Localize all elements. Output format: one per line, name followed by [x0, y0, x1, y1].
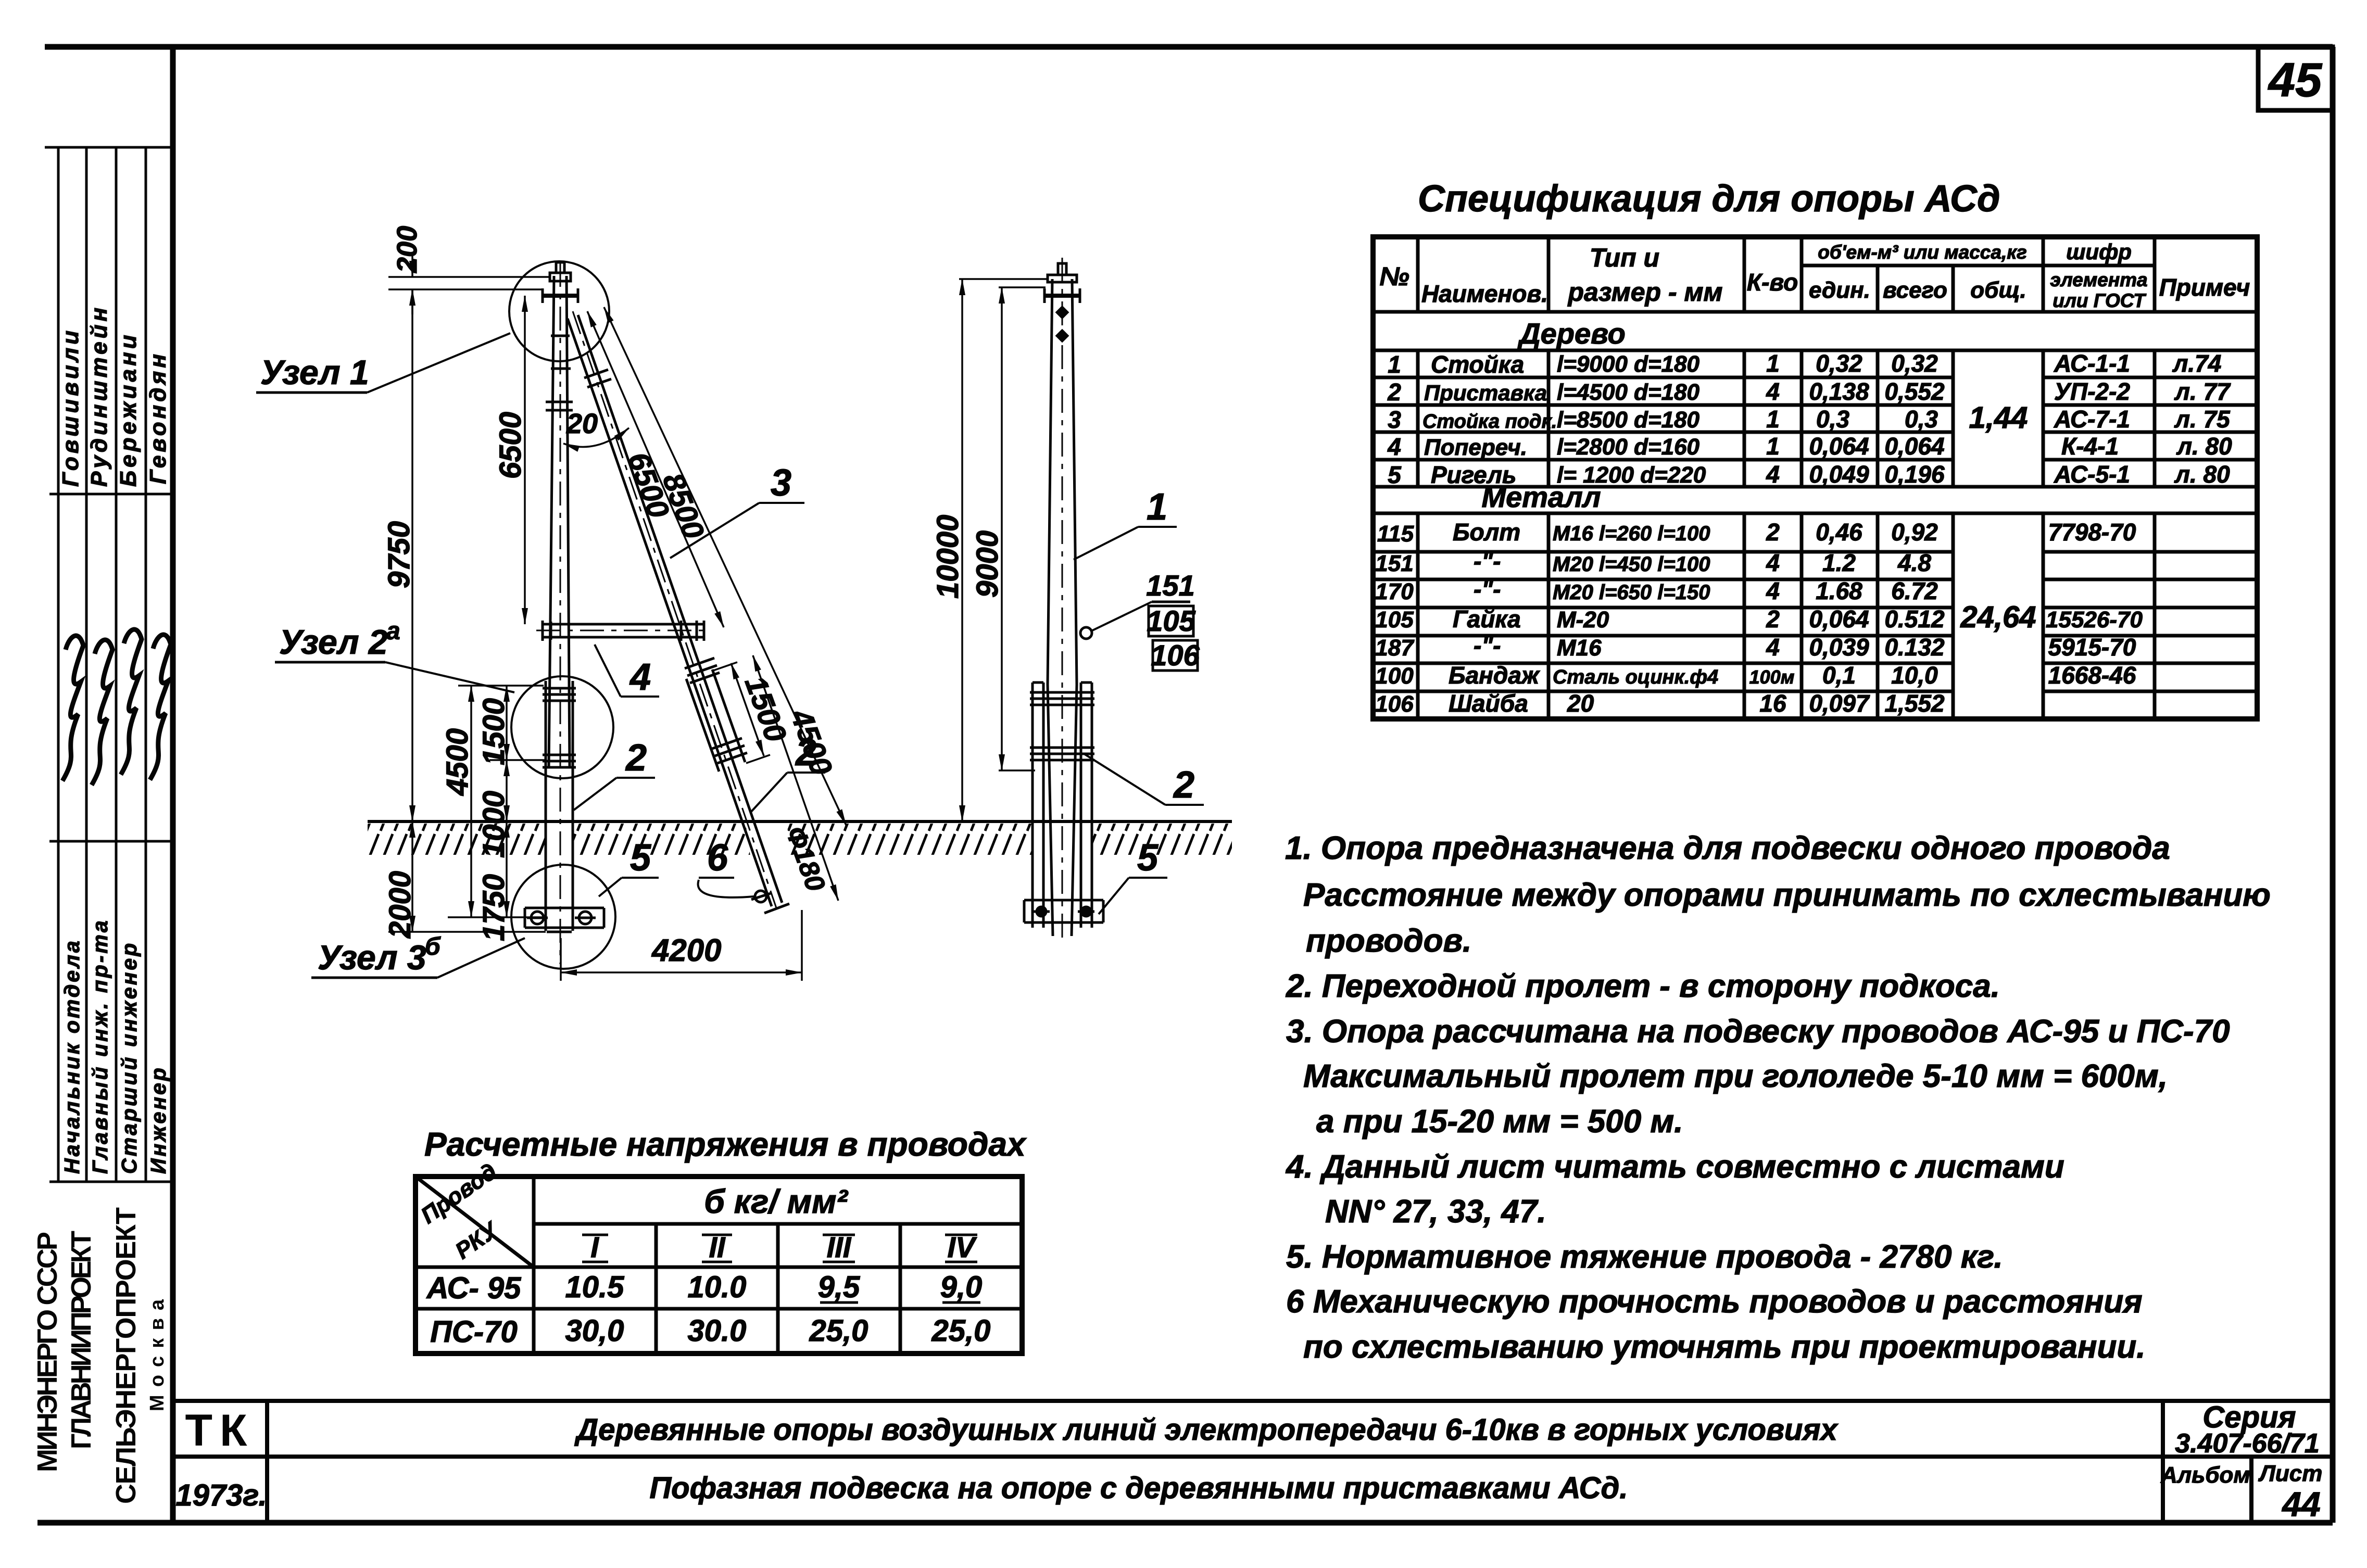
svg-text:1973г.: 1973г. — [175, 1478, 267, 1512]
svg-text:по схлестыванию уточнять пр: по схлестыванию уточнять при проектирова… — [1303, 1329, 2145, 1365]
svg-text:10,0: 10,0 — [1891, 662, 1938, 689]
svg-text:0.132: 0.132 — [1884, 634, 1945, 661]
svg-text:1: 1 — [1147, 486, 1167, 528]
svg-text:шифр: шифр — [2066, 239, 2132, 264]
svg-text:б: б — [425, 933, 441, 960]
svg-text:а: а — [386, 617, 400, 645]
svg-text:0,552: 0,552 — [1884, 378, 1945, 405]
svg-text:Деревянные опоры воздушных: Деревянные опоры воздушных линий электро… — [574, 1413, 1839, 1447]
svg-text:0,32: 0,32 — [1816, 350, 1862, 377]
svg-text:АС-5-1: АС-5-1 — [2054, 461, 2130, 488]
svg-text:9000: 9000 — [971, 530, 1004, 598]
svg-text:1500: 1500 — [477, 698, 511, 765]
svg-text:УП-2-2: УП-2-2 — [2054, 378, 2130, 405]
svg-text:6500: 6500 — [494, 412, 527, 479]
svg-text:10.5: 10.5 — [565, 1270, 625, 1304]
svg-text:ГЛАВНИИПРОЕКТ: ГЛАВНИИПРОЕКТ — [66, 1231, 97, 1449]
svg-text:1. Опора предназначена для: 1. Опора предназначена для подвески одно… — [1285, 830, 2170, 866]
svg-text:Узел 1: Узел 1 — [260, 353, 369, 391]
svg-text:30.0: 30.0 — [688, 1314, 747, 1348]
svg-text:Гайка: Гайка — [1453, 605, 1521, 633]
svg-text:5: 5 — [1388, 461, 1402, 488]
svg-text:115: 115 — [1377, 521, 1414, 547]
svg-text:Стойка подк.: Стойка подк. — [1422, 411, 1557, 433]
svg-text:Шайба: Шайба — [1449, 690, 1528, 717]
svg-text:3.407-66/71: 3.407-66/71 — [2175, 1428, 2320, 1459]
svg-text:ТК: ТК — [185, 1406, 254, 1456]
svg-text:0,064: 0,064 — [1809, 433, 1869, 460]
svg-text:1.2: 1.2 — [1822, 549, 1856, 576]
svg-text:1: 1 — [1766, 406, 1780, 433]
svg-text:1: 1 — [1766, 433, 1780, 460]
svg-text:Рудинштейн: Рудинштейн — [86, 305, 112, 487]
svg-text:44: 44 — [2281, 1485, 2320, 1523]
svg-text:Сталь оцинк.ф4: Сталь оцинк.ф4 — [1553, 666, 1718, 688]
svg-text:Пофазная подвеска на опоре: Пофазная подвеска на опоре с деревянными… — [649, 1471, 1628, 1505]
svg-text:1,552: 1,552 — [1884, 690, 1945, 717]
svg-text:АС-1-1: АС-1-1 — [2054, 350, 2130, 377]
svg-text:4: 4 — [1387, 433, 1401, 460]
svg-text:9,5: 9,5 — [818, 1270, 860, 1304]
svg-text:л.74: л.74 — [2172, 350, 2222, 377]
svg-text:М20 l=650 l=150: М20 l=650 l=150 — [1553, 581, 1710, 604]
svg-text:или ГОСТ: или ГОСТ — [2053, 290, 2147, 311]
svg-text:Бандаж: Бандаж — [1449, 662, 1540, 689]
svg-text:Лист: Лист — [2258, 1461, 2323, 1486]
svg-text:б кг/ мм²: б кг/ мм² — [704, 1183, 848, 1220]
svg-text:4: 4 — [1766, 549, 1780, 576]
svg-text:проводов.: проводов. — [1306, 923, 1471, 959]
svg-text:Расстояние между опорами прини: Расстояние между опорами принимать по сх… — [1303, 877, 2271, 913]
svg-text:4: 4 — [1766, 461, 1780, 488]
svg-text:2: 2 — [795, 732, 816, 774]
svg-text:170: 170 — [1375, 579, 1414, 604]
svg-text:Тип и: Тип и — [1590, 243, 1659, 272]
svg-text:5915-70: 5915-70 — [2048, 634, 2136, 661]
svg-text:105: 105 — [1147, 604, 1195, 637]
svg-text:2. Переходной пролет - в сто: 2. Переходной пролет - в сторону подкоса… — [1286, 968, 2000, 1004]
svg-text:К-4-1: К-4-1 — [2061, 433, 2119, 460]
svg-text:л. 77: л. 77 — [2174, 378, 2231, 405]
svg-text:Дерево: Дерево — [1517, 317, 1626, 350]
svg-text:2: 2 — [1387, 378, 1401, 406]
svg-text:1.68: 1.68 — [1816, 577, 1862, 604]
svg-text:l=9000 d=180: l=9000 d=180 — [1557, 351, 1700, 377]
svg-text:6: 6 — [707, 837, 728, 879]
svg-text:5: 5 — [630, 837, 651, 879]
svg-text:2: 2 — [1173, 764, 1194, 806]
svg-text:151: 151 — [1375, 551, 1413, 576]
svg-text:0,196: 0,196 — [1884, 461, 1945, 488]
svg-text:Стойка: Стойка — [1431, 351, 1524, 378]
svg-text:МИНЭНЕРГО СССР: МИНЭНЕРГО СССР — [32, 1232, 63, 1472]
svg-text:l=8500 d=180: l=8500 d=180 — [1557, 407, 1700, 433]
svg-text:106: 106 — [1151, 639, 1200, 672]
svg-text:4. Данный лист читать совме: 4. Данный лист читать совместно с листам… — [1285, 1149, 2064, 1185]
svg-text:0,92: 0,92 — [1891, 519, 1938, 546]
svg-text:5. Нормативное тяжение прово: 5. Нормативное тяжение провода - 2780 кг… — [1286, 1239, 2003, 1275]
svg-text:размер - мм: размер - мм — [1567, 277, 1723, 307]
svg-text:элемента: элемента — [2050, 269, 2147, 290]
svg-text:0,1: 0,1 — [1822, 662, 1856, 689]
svg-text:187: 187 — [1375, 635, 1415, 661]
svg-text:Примеч: Примеч — [2159, 274, 2250, 301]
svg-text:0,3: 0,3 — [1816, 406, 1849, 433]
svg-text:3. Опора рассчитана на подв: 3. Опора рассчитана на подвеску проводов… — [1286, 1014, 2230, 1049]
svg-text:0,46: 0,46 — [1816, 519, 1862, 546]
svg-text:АС-7-1: АС-7-1 — [2054, 406, 2130, 433]
svg-text:24,64: 24,64 — [1960, 600, 2036, 634]
svg-text:0,049: 0,049 — [1809, 461, 1869, 488]
svg-text:4200: 4200 — [651, 933, 721, 968]
svg-text:2000: 2000 — [383, 871, 417, 939]
svg-text:10000: 10000 — [931, 515, 965, 599]
svg-text:3: 3 — [1388, 406, 1401, 433]
svg-text:№: № — [1379, 262, 1409, 291]
svg-text:л. 75: л. 75 — [2174, 406, 2231, 433]
svg-text:М-20: М-20 — [1557, 607, 1609, 633]
svg-text:1750: 1750 — [477, 874, 511, 941]
svg-text:Металл: Металл — [1481, 480, 1601, 513]
svg-text:l=2800 d=160: l=2800 d=160 — [1557, 434, 1700, 460]
svg-text:Наименов.: Наименов. — [1421, 280, 1548, 307]
svg-text:Инженер: Инженер — [146, 1066, 170, 1174]
svg-text:151: 151 — [1146, 569, 1194, 602]
svg-text:4: 4 — [1766, 378, 1780, 405]
svg-text:К-во: К-во — [1747, 269, 1798, 296]
svg-text:-"-: -"- — [1474, 632, 1501, 659]
svg-text:l=4500 d=180: l=4500 d=180 — [1557, 380, 1700, 405]
svg-text:М16: М16 — [1557, 635, 1602, 661]
svg-text:0,039: 0,039 — [1809, 634, 1869, 661]
svg-text:СЕЛЬЭНЕРГОПРОЕКТ: СЕЛЬЭНЕРГОПРОЕКТ — [110, 1207, 142, 1504]
svg-text:Узел 2: Узел 2 — [279, 623, 388, 661]
svg-text:0,138: 0,138 — [1809, 378, 1869, 405]
svg-text:Начальник отдела: Начальник отдела — [60, 939, 84, 1174]
svg-text:а при 15-20 мм = 500 м.: а при 15-20 мм = 500 м. — [1316, 1104, 1683, 1140]
svg-text:Альбом: Альбом — [2160, 1462, 2250, 1488]
svg-text:20: 20 — [566, 408, 598, 439]
svg-text:6 Механическую прочность про: 6 Механическую прочность проводов и расс… — [1286, 1284, 2143, 1320]
svg-text:200: 200 — [392, 226, 423, 273]
svg-text:105: 105 — [1375, 607, 1414, 633]
svg-text:1,44: 1,44 — [1969, 401, 2028, 435]
svg-text:9750: 9750 — [382, 521, 416, 588]
svg-text:9,0: 9,0 — [940, 1270, 983, 1304]
svg-text:4: 4 — [1766, 577, 1780, 604]
svg-text:2: 2 — [1766, 519, 1780, 546]
svg-text:106: 106 — [1375, 691, 1414, 717]
svg-text:всего: всего — [1883, 277, 1947, 303]
svg-text:Старший инженер: Старший инженер — [117, 941, 141, 1174]
svg-text:25,0: 25,0 — [809, 1314, 868, 1348]
svg-text:Говшивили: Говшивили — [58, 327, 83, 487]
svg-text:20: 20 — [1567, 690, 1594, 717]
svg-text:М16 l=260 l=100: М16 l=260 l=100 — [1553, 522, 1710, 545]
svg-text:100: 100 — [1375, 663, 1414, 689]
svg-text:4.8: 4.8 — [1897, 549, 1931, 576]
svg-text:30,0: 30,0 — [565, 1314, 624, 1348]
svg-text:25,0: 25,0 — [931, 1314, 991, 1348]
svg-text:0,064: 0,064 — [1884, 433, 1944, 460]
svg-text:7798-70: 7798-70 — [2048, 519, 2136, 546]
svg-text:15526-70: 15526-70 — [2046, 607, 2143, 633]
svg-text:16: 16 — [1759, 690, 1786, 717]
svg-text:4: 4 — [629, 656, 651, 698]
svg-text:Расчетные напряжения в пров: Расчетные напряжения в проводах — [424, 1126, 1027, 1163]
svg-text:-"-: -"- — [1474, 548, 1501, 575]
svg-text:NN° 27, 33, 47.: NN° 27, 33, 47. — [1325, 1194, 1546, 1230]
svg-text:л. 80: л. 80 — [2174, 461, 2230, 488]
svg-text:45: 45 — [2268, 54, 2323, 107]
svg-text:М20 l=450 l=100: М20 l=450 l=100 — [1553, 553, 1710, 576]
svg-text:Приставка: Приставка — [1424, 381, 1547, 405]
svg-text:2: 2 — [1766, 605, 1780, 633]
svg-text:-"-: -"- — [1474, 576, 1501, 603]
svg-text:4: 4 — [1766, 634, 1780, 661]
svg-text:Спецификация для опоры АСд: Спецификация для опоры АСд — [1418, 178, 2000, 220]
svg-text:0,064: 0,064 — [1809, 605, 1869, 633]
svg-text:0,32: 0,32 — [1891, 350, 1938, 377]
svg-text:4500: 4500 — [440, 728, 474, 796]
svg-text:Попереч.: Попереч. — [1424, 435, 1527, 460]
svg-text:ПС-70: ПС-70 — [430, 1315, 517, 1349]
svg-text:3: 3 — [771, 462, 791, 504]
svg-text:100м: 100м — [1749, 666, 1795, 688]
svg-text:Главный инж. пр-та: Главный инж. пр-та — [88, 918, 112, 1174]
svg-text:Узел 3: Узел 3 — [318, 938, 426, 977]
svg-text:Максимальный пролет при гол: Максимальный пролет при гололеде 5-10 мм… — [1303, 1058, 2168, 1094]
svg-text:един.: един. — [1809, 277, 1870, 303]
svg-text:10.0: 10.0 — [688, 1270, 747, 1304]
svg-text:1: 1 — [1388, 351, 1401, 378]
svg-text:1000: 1000 — [477, 791, 511, 858]
svg-text:2: 2 — [625, 737, 647, 779]
svg-text:0,3: 0,3 — [1905, 406, 1938, 433]
svg-text:Болт: Болт — [1453, 519, 1520, 546]
svg-text:0,097: 0,097 — [1809, 690, 1870, 717]
svg-text:л. 80: л. 80 — [2176, 433, 2232, 460]
svg-text:1668-46: 1668-46 — [2048, 662, 2136, 689]
svg-text:6.72: 6.72 — [1891, 577, 1938, 604]
svg-text:АС- 95: АС- 95 — [426, 1271, 522, 1305]
svg-text:Гевондян: Гевондян — [145, 351, 171, 484]
svg-text:0.512: 0.512 — [1884, 605, 1945, 633]
svg-text:об'ем-м³ или масса,кг: об'ем-м³ или масса,кг — [1818, 242, 2027, 263]
svg-text:5: 5 — [1137, 837, 1159, 879]
svg-text:Бережиани: Бережиани — [116, 332, 141, 487]
svg-text:общ.: общ. — [1970, 277, 2026, 303]
svg-text:1: 1 — [1766, 350, 1780, 377]
